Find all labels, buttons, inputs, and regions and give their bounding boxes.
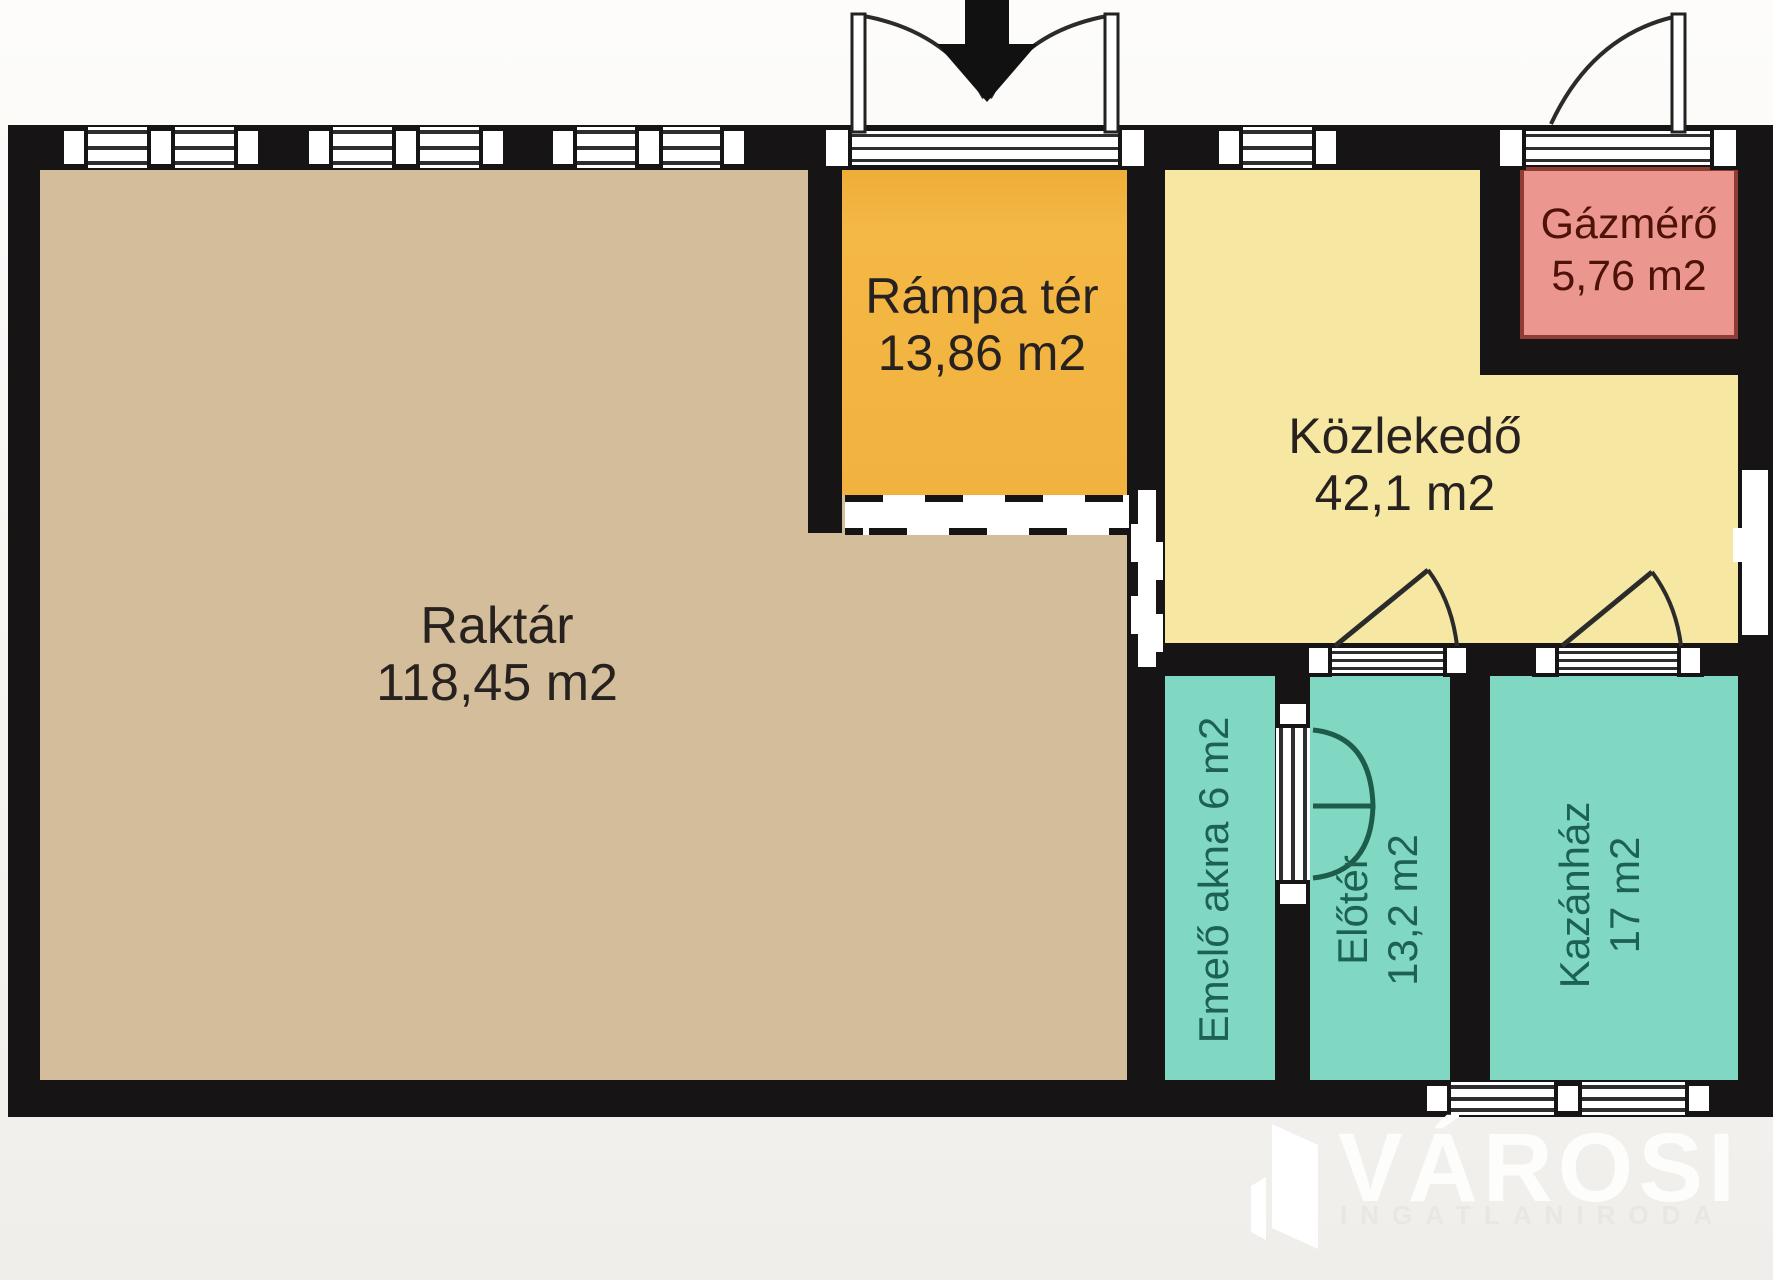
- entrance-swing-arc: [864, 16, 984, 98]
- room-name: Emelő akna: [1190, 822, 1237, 1044]
- wall-gazmero-bottom: [1480, 337, 1773, 375]
- window-cap: [60, 127, 88, 168]
- entrance-door-leaf: [1105, 14, 1118, 132]
- swing-doorframe: [1276, 700, 1310, 908]
- gazmero-door-jamb: [1710, 126, 1740, 170]
- dash-line: [845, 528, 1129, 535]
- entrance-swing-arc: [990, 16, 1107, 98]
- dash-line: [1156, 490, 1163, 667]
- kazanhaz-label: Kazánház 17 m2: [1550, 802, 1650, 989]
- dashed-opening-raktar-kozlekedo: [1131, 490, 1163, 667]
- window-cap: [1554, 1082, 1582, 1115]
- window-glass: [1451, 1082, 1554, 1115]
- window-cap: [1215, 127, 1243, 168]
- entrance-door-jamb: [822, 126, 852, 170]
- room-area: 42,1 m2: [1165, 465, 1645, 522]
- dash-line: [845, 495, 1129, 502]
- window-glass: [577, 127, 635, 168]
- kazanhaz-door-jamb: [1532, 644, 1559, 677]
- emelo-akna-label: Emelő akna 6 m2: [1189, 717, 1239, 1044]
- window-symbol: [305, 127, 507, 168]
- dash-line: [1131, 490, 1138, 667]
- window-cap: [720, 127, 748, 168]
- eloter-door-sill: [1332, 648, 1443, 673]
- entrance-door-leaf: [852, 14, 865, 132]
- room-name: Gázmérő: [1520, 198, 1738, 250]
- window-glass: [420, 127, 479, 168]
- room-name: Előtér: [1328, 834, 1378, 986]
- gazmero-label: Gázmérő 5,76 m2: [1520, 198, 1738, 302]
- doorframe-glass: [1276, 728, 1310, 880]
- window-symbol: [60, 127, 262, 168]
- kozlekedo-label: Közlekedő 42,1 m2: [1165, 408, 1645, 522]
- wall-left: [8, 125, 40, 1117]
- window-cap: [1685, 1082, 1713, 1115]
- window-glass: [88, 127, 147, 168]
- window-glass: [1243, 127, 1312, 168]
- room-name: Rámpa tér: [832, 268, 1132, 325]
- right-wall-opening: [1742, 470, 1768, 635]
- entrance-arrow-icon: [965, 0, 1009, 46]
- eloter-door-jamb: [1443, 644, 1470, 677]
- window-symbol: [1423, 1082, 1713, 1115]
- window-cap: [147, 127, 175, 168]
- window-cap: [479, 127, 507, 168]
- gazmero-door-sill: [1526, 131, 1710, 165]
- window-cap: [549, 127, 577, 168]
- room-name: Közlekedő: [1165, 408, 1645, 465]
- doorframe-cap: [1276, 880, 1310, 908]
- window-cap: [392, 127, 420, 168]
- gazmero-swing-arc: [1551, 16, 1678, 124]
- window-cap: [234, 127, 262, 168]
- window-cap: [305, 127, 333, 168]
- window-symbol: [549, 127, 748, 168]
- window-glass: [333, 127, 392, 168]
- eloter-label: Előtér 13,2 m2: [1328, 834, 1428, 986]
- brand-logo-icon: [1245, 1118, 1325, 1253]
- room-area: 118,45 m2: [247, 655, 747, 712]
- wall-eloter-kazanhaz: [1450, 676, 1490, 1080]
- entrance-arrow-icon: [937, 44, 1037, 102]
- window-cap: [1312, 127, 1340, 168]
- entrance-door-jamb: [1118, 126, 1148, 170]
- rampa-ter-label: Rámpa tér 13,86 m2: [832, 268, 1132, 382]
- raktar-label: Raktár 118,45 m2: [247, 598, 747, 712]
- brand-tagline: INGATLANIRODA: [1340, 1200, 1725, 1231]
- gazmero-door-jamb: [1496, 126, 1526, 170]
- room-area: 5,76 m2: [1520, 250, 1738, 302]
- dashed-opening-rampa: [845, 495, 1129, 535]
- room-area: 6 m2: [1190, 717, 1237, 810]
- window-glass: [175, 127, 234, 168]
- kazanhaz-door-sill: [1559, 648, 1677, 673]
- doorframe-cap: [1276, 700, 1310, 728]
- room-name: Raktár: [247, 598, 747, 655]
- window-symbol: [1215, 127, 1340, 168]
- eloter-door-jamb: [1305, 644, 1332, 677]
- window-glass: [1582, 1082, 1685, 1115]
- right-wall-opening-notch: [1733, 528, 1742, 562]
- window-glass: [663, 127, 721, 168]
- room-area: 13,86 m2: [832, 325, 1132, 382]
- room-area: 17 m2: [1600, 802, 1650, 989]
- window-cap: [1423, 1082, 1451, 1115]
- gazmero-door-leaf: [1672, 14, 1685, 132]
- room-name: Kazánház: [1550, 802, 1600, 989]
- entrance-door-sill: [852, 131, 1118, 165]
- kazanhaz-door-jamb: [1677, 644, 1704, 677]
- room-area: 13,2 m2: [1378, 834, 1428, 986]
- floor-plan-canvas: Raktár 118,45 m2 Rámpa tér 13,86 m2 Közl…: [0, 0, 1773, 1280]
- window-cap: [635, 127, 663, 168]
